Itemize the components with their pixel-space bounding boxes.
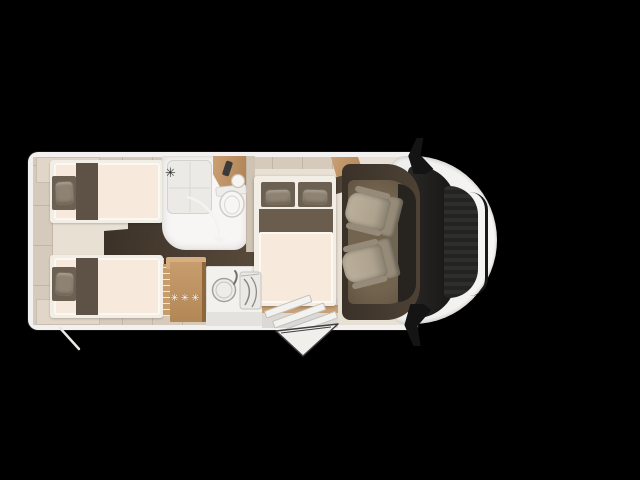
awning-crank: [60, 328, 79, 349]
kitchen-base-cabinet: [206, 312, 264, 326]
shower-head-icon: ✳: [165, 166, 181, 182]
single-bed-bottom-pillow: [54, 272, 74, 297]
single-bed-top-runner: [76, 163, 98, 220]
double-bed-pillow-right: [302, 189, 329, 206]
front-bumper-trim: [470, 192, 488, 296]
single-bed-bottom-runner: [76, 258, 98, 315]
double-bed-mattress: [259, 232, 333, 303]
freezer-stars-label: ✳✳✳: [168, 291, 204, 307]
double-bed-duvet: [259, 209, 333, 233]
entry-threshold-wood: [262, 305, 338, 313]
single-bed-top-pillow: [54, 181, 74, 206]
floorplan-stage: ✳ ✳✳✳: [0, 0, 640, 480]
double-bed-pillow-left: [265, 189, 292, 206]
